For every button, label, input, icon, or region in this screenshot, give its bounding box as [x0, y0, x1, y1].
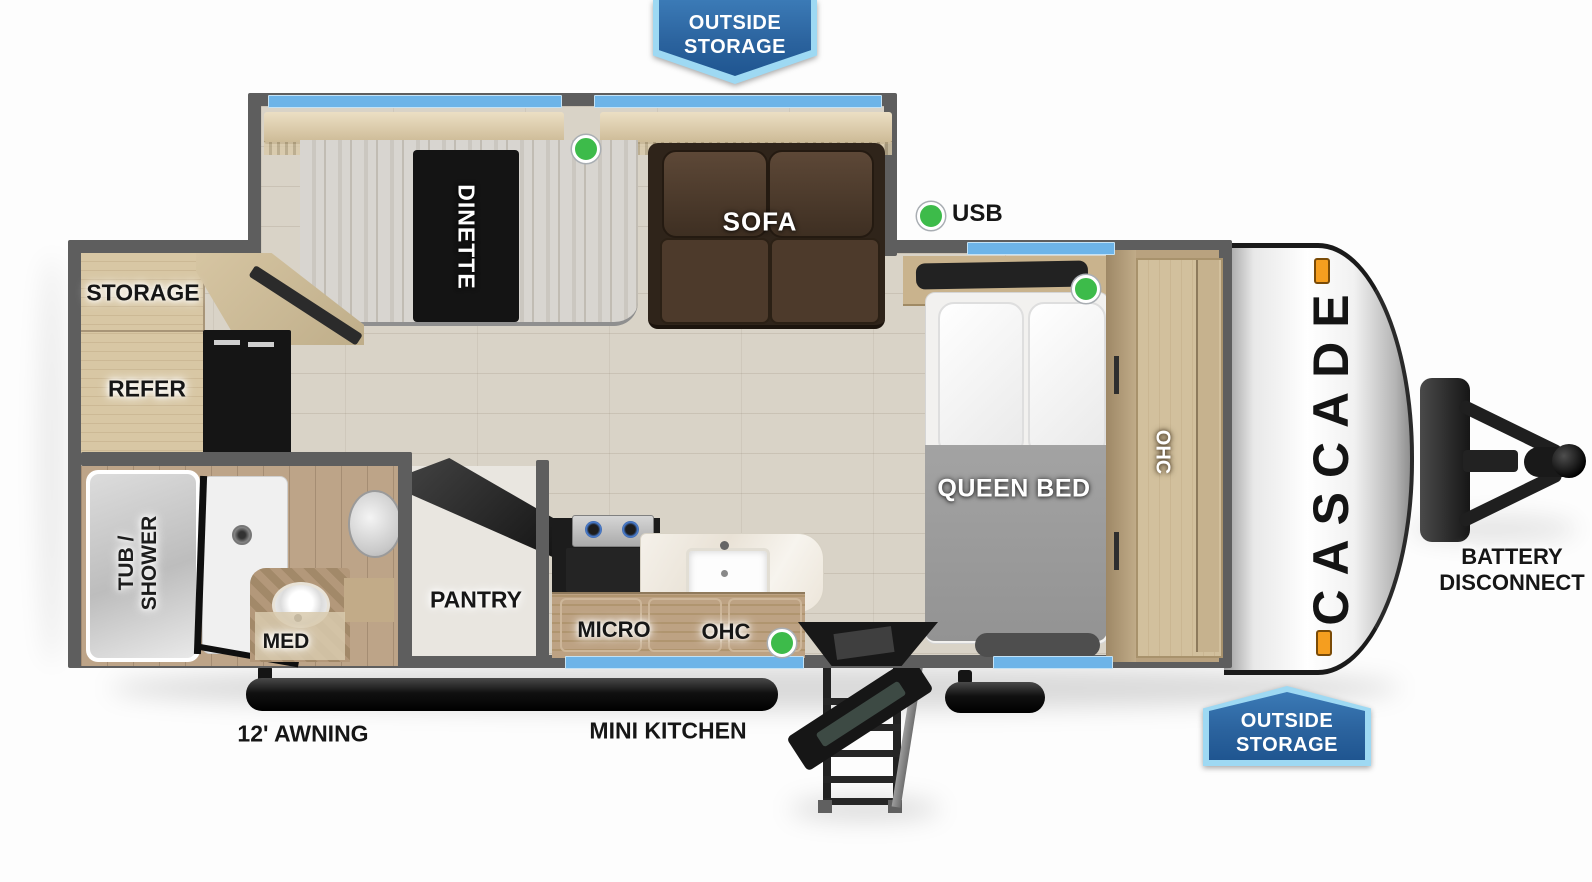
refrigerator [203, 330, 291, 458]
micro-label: MICRO [577, 617, 650, 643]
step-rung [823, 776, 901, 783]
hitch-coupler-knob [1552, 444, 1586, 478]
bathroom-wall [398, 452, 412, 668]
storage-label: STORAGE [86, 280, 199, 307]
kitchen-faucet [720, 541, 729, 550]
battery-disconnect-label: BATTERY DISCONNECT [1422, 544, 1592, 596]
tub-shower-label-line2: SHOWER [138, 516, 161, 611]
queen-bed-label: QUEEN BED [937, 475, 1090, 504]
slideout-window [594, 95, 882, 108]
tub-shower-label: TUB / SHOWER [115, 516, 161, 611]
dinette-label: DINETTE [453, 184, 480, 289]
led-indicator-dot [572, 135, 600, 163]
sofa-seat-cushion [660, 238, 770, 324]
rv-floorplan-diagram: CASCADE BATTERY DISCONNECT DINETTE [0, 0, 1592, 882]
kitchen-drain [721, 570, 728, 577]
pantry-label: PANTRY [430, 587, 522, 614]
window-valance [600, 112, 892, 144]
usb-label: USB [952, 200, 1003, 228]
sofa-label: SOFA [723, 207, 798, 238]
med-label: MED [263, 630, 310, 654]
led-indicator-dot [768, 629, 796, 657]
clearance-light-icon [1316, 630, 1332, 656]
cabinet-divider [81, 330, 203, 332]
pillow [1028, 302, 1106, 456]
battery-disconnect-line2: DISCONNECT [1422, 570, 1592, 596]
step-foot [818, 800, 832, 813]
hitch-tongue [1463, 450, 1518, 472]
slideout-window [268, 95, 562, 108]
battery-disconnect-line1: BATTERY [1422, 544, 1592, 570]
led-indicator-dot [1072, 275, 1100, 303]
outside-storage-banner-bottom: OUTSIDE STORAGE [1203, 686, 1371, 766]
stove-burner [622, 521, 639, 538]
refer-label: REFER [108, 376, 186, 403]
kitchen-window [565, 656, 804, 669]
banner-top-line2: STORAGE [653, 36, 817, 59]
mini-kitchen-label: MINI KITCHEN [589, 718, 746, 745]
pillow [938, 302, 1024, 456]
bedroom-window [993, 656, 1113, 669]
awning-label: 12' AWNING [237, 721, 368, 748]
banner-top-line1: OUTSIDE [653, 12, 817, 35]
stove-burner [585, 521, 602, 538]
tub-shower-label-line1: TUB / [115, 516, 138, 611]
bedroom-window [967, 242, 1115, 255]
refrigerator-handle [214, 340, 240, 345]
wardrobe-door-panel [1106, 250, 1136, 662]
wardrobe-side-panel [1196, 260, 1219, 652]
wardrobe-handle [1114, 356, 1119, 394]
banner-bottom-line1: OUTSIDE [1203, 710, 1371, 733]
bathroom-wall [81, 452, 412, 466]
bed-footer-bar [975, 633, 1100, 657]
outside-storage-banner-top: OUTSIDE STORAGE [653, 0, 817, 84]
refrigerator-handle [248, 342, 274, 347]
banner-bottom-line2: STORAGE [1203, 734, 1371, 757]
clearance-light-icon [1314, 258, 1330, 284]
pantry-wall [536, 460, 549, 668]
led-indicator-dot [917, 202, 945, 230]
brand-logo: CASCADE [1302, 280, 1360, 625]
sofa-seat-cushion [770, 238, 880, 324]
awning-tube [246, 678, 778, 711]
headboard-rail [916, 261, 1088, 290]
wardrobe-handle [1114, 532, 1119, 570]
microwave-unit [566, 548, 642, 592]
rear-shadow [38, 255, 66, 665]
kitchen-ohc-label: OHC [702, 619, 751, 645]
bedroom-ohc-label: OHC [1151, 430, 1174, 474]
awning-tube [945, 682, 1045, 713]
toilet [348, 490, 402, 558]
vanity-counter [344, 578, 394, 622]
shower-drain [232, 525, 252, 545]
